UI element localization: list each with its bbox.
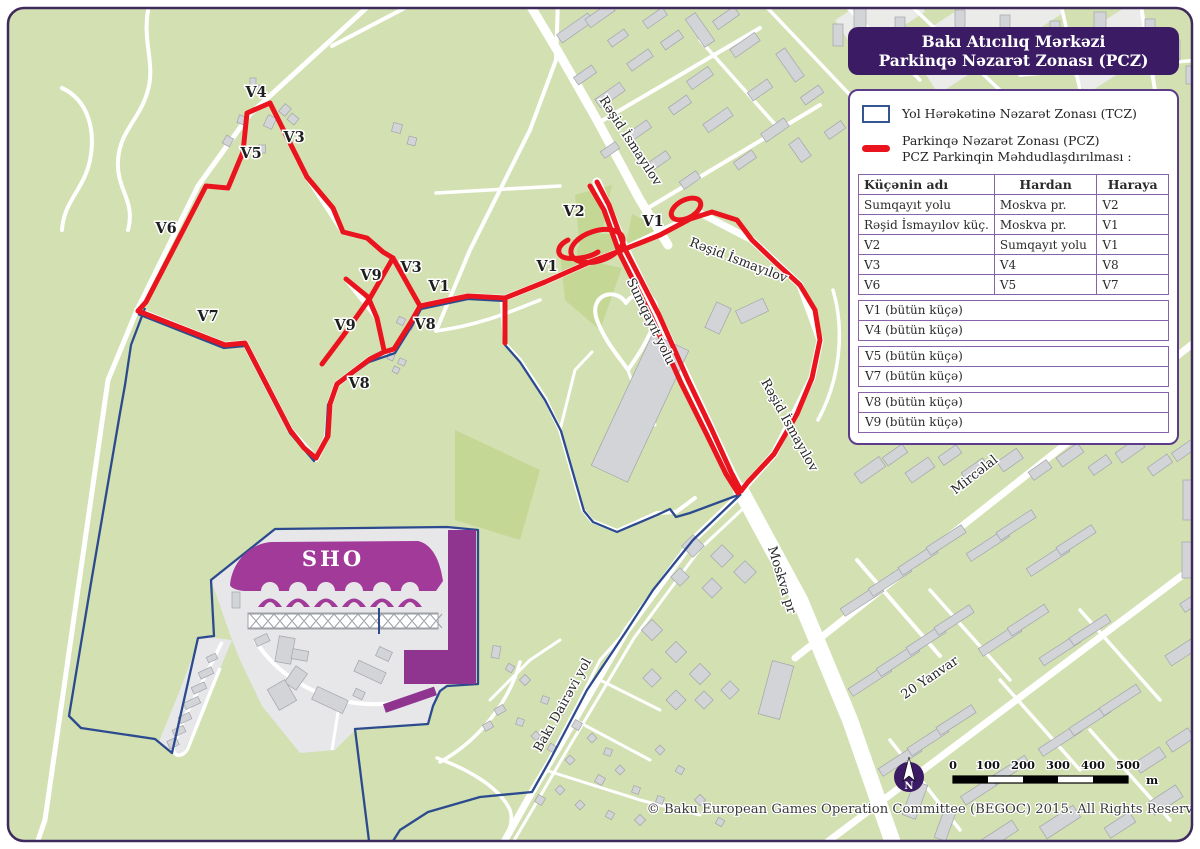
table-row: V3 V4 V8 — [859, 255, 1169, 275]
map-page: V4V3V5V6V3V9V1V1V7V9V8V8V2V1Rəşid İsmayı… — [0, 0, 1200, 849]
building — [407, 136, 417, 146]
map-label: V8 — [413, 316, 435, 333]
scale-tick-label: 400 — [1081, 758, 1105, 772]
cell-street: V3 — [859, 255, 995, 275]
cell-from: V5 — [994, 275, 1097, 295]
table-row: Sumqayıt yolu Moskva pr. V2 — [859, 195, 1169, 215]
full-row: V1 (bütün küçə) — [858, 300, 1169, 321]
scale-tick-label: 200 — [1011, 758, 1035, 772]
map-label: V3 — [282, 129, 304, 146]
tcz-swatch-icon — [862, 105, 890, 123]
scale-unit: m — [1146, 773, 1158, 787]
cell-to: V7 — [1097, 275, 1169, 295]
legend-panel: Yol Hərəkətinə Nəzarət Zonası (TCZ) Park… — [848, 89, 1179, 445]
map-label: V8 — [347, 375, 369, 392]
full-row: V9 (bütün küçə) — [858, 413, 1169, 433]
cell-from: Sumqayıt yolu — [994, 235, 1097, 255]
cell-street: V6 — [859, 275, 995, 295]
scale-tick-label: 0 — [949, 758, 957, 772]
map-title-line1: Bakı Atıcılıq Mərkəzi — [848, 32, 1179, 51]
col-header-from: Hardan — [994, 175, 1097, 195]
col-header-street: Küçənin adı — [859, 175, 995, 195]
copyright-text: © Baku European Games Operation Committe… — [647, 802, 1200, 817]
legend-item-tcz: Yol Hərəkətinə Nəzarət Zonası (TCZ) — [862, 105, 1167, 123]
pcz-label-line2: PCZ Parkinqin Məhdudlaşdırılması : — [902, 149, 1132, 164]
map-label: V1 — [641, 213, 663, 230]
venue-side-building — [448, 530, 476, 684]
legend-item-pcz: Parkinqə Nəzarət Zonası (PCZ) PCZ Parkin… — [862, 133, 1167, 164]
table-row: V6 V5 V7 — [859, 275, 1169, 295]
pcz-label-line1: Parkinqə Nəzarət Zonası (PCZ) — [902, 133, 1100, 148]
table-header-row: Küçənin adı Hardan Haraya — [859, 175, 1169, 195]
col-header-to: Haraya — [1097, 175, 1169, 195]
compass-letter: N — [904, 781, 913, 792]
full-street-rows: V1 (bütün küçə) V4 (bütün küçə) V5 (bütü… — [858, 300, 1169, 433]
cell-to: V2 — [1097, 195, 1169, 215]
map-label: V6 — [154, 220, 176, 237]
cell-from: Moskva pr. — [994, 215, 1097, 235]
building — [391, 122, 402, 133]
map-label: V5 — [239, 145, 261, 162]
map-label: V1 — [427, 278, 449, 295]
cell-to: V1 — [1097, 235, 1169, 255]
map-label: V2 — [562, 203, 584, 220]
scale-tick-label: 100 — [976, 758, 1000, 772]
map-label: V3 — [399, 259, 421, 276]
full-row: V5 (bütün küçə) — [858, 346, 1169, 367]
map-label: V9 — [359, 267, 381, 284]
full-row: V4 (bütün küçə) — [858, 321, 1169, 341]
building — [491, 645, 501, 658]
cell-street: Rəşid İsmayılov küç. — [859, 215, 995, 235]
map-title-line2: Parkinqə Nəzarət Zonası (PCZ) — [848, 51, 1179, 70]
cell-street: V2 — [859, 235, 995, 255]
pcz-label: Parkinqə Nəzarət Zonası (PCZ) PCZ Parkin… — [902, 133, 1132, 164]
cell-from: Moskva pr. — [994, 195, 1097, 215]
building — [1183, 480, 1197, 520]
cell-street: Sumqayıt yolu — [859, 195, 995, 215]
map-label: SHO — [302, 546, 364, 571]
scale-tick-label: 300 — [1046, 758, 1070, 772]
map-label: V1 — [535, 258, 557, 275]
full-row: V8 (bütün küçə) — [858, 392, 1169, 413]
cell-to: V8 — [1097, 255, 1169, 275]
scale-tick-label: 500 — [1116, 758, 1140, 772]
table-row: V2 Sumqayıt yolu V1 — [859, 235, 1169, 255]
map-label: V9 — [333, 317, 355, 334]
map-title-box: Bakı Atıcılıq Mərkəzi Parkinqə Nəzarət Z… — [848, 27, 1179, 75]
venue-side-building — [404, 650, 450, 684]
building — [833, 24, 843, 46]
table-row: Rəşid İsmayılov küç. Moskva pr. V1 — [859, 215, 1169, 235]
cell-to: V1 — [1097, 215, 1169, 235]
tcz-label: Yol Hərəkətinə Nəzarət Zonası (TCZ) — [902, 106, 1137, 122]
cell-from: V4 — [994, 255, 1097, 275]
map-label: V4 — [244, 84, 266, 101]
map-label: V7 — [196, 308, 218, 325]
building — [232, 592, 240, 608]
full-row: V7 (bütün küçə) — [858, 367, 1169, 387]
pcz-line-swatch-icon — [862, 145, 890, 152]
restrictions-table: Küçənin adı Hardan Haraya Sumqayıt yolu … — [858, 174, 1169, 295]
